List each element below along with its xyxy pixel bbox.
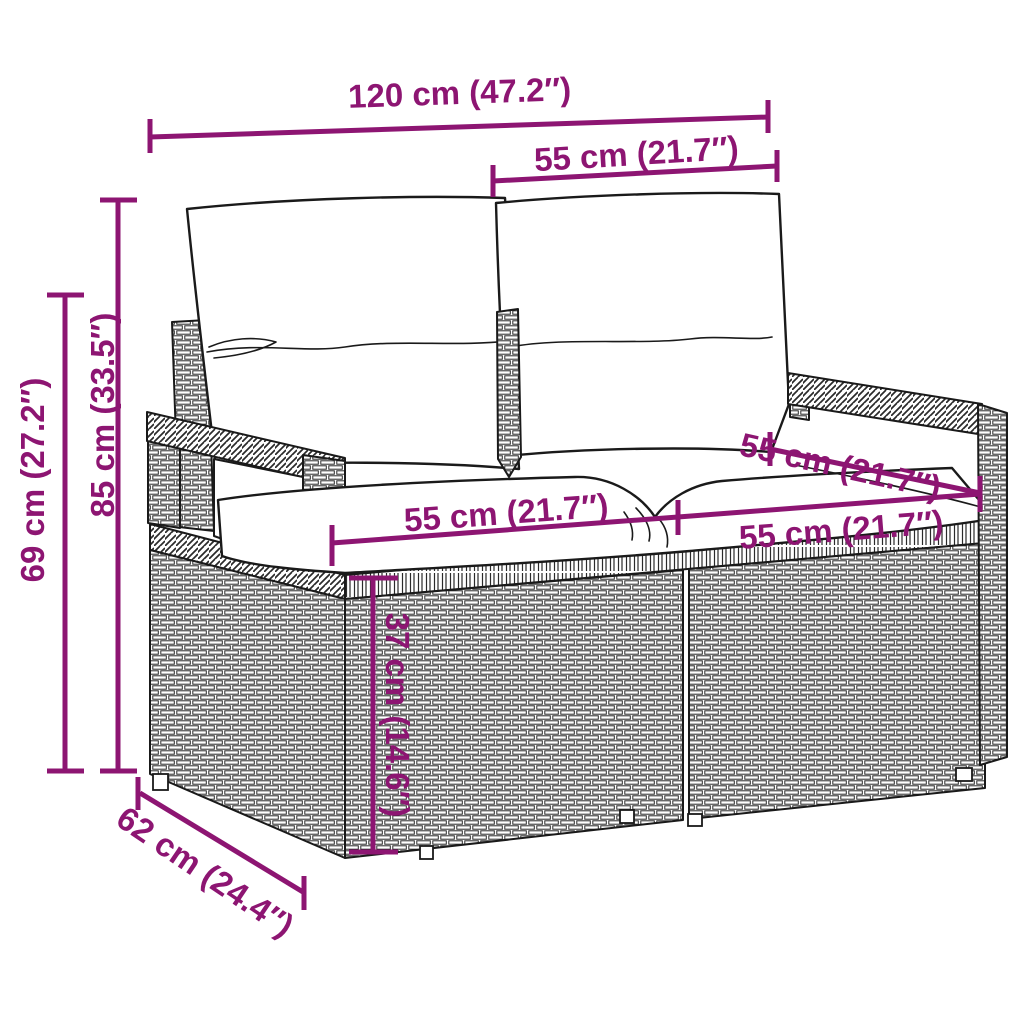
foot-front-left [420,846,433,859]
right-armrest-outer-panel [978,404,1007,765]
diagram-canvas: 120 cm (47.2″) 55 cm (21.7″) 85 cm (33.5… [0,0,1024,1024]
foot-seam [688,814,702,826]
base-front-face-right-module [689,543,985,819]
backrest-center-strip [497,309,521,477]
dim-overall-width-label: 120 cm (47.2″) [347,70,571,115]
back-cushion-right [496,193,789,456]
dim-armrest-height: 69 cm (27.2″) [14,295,84,771]
foot-front-middle [620,810,634,823]
dim-seat-height-label: 37 cm (14.6″) [379,613,416,818]
product-dimension-diagram: 120 cm (47.2″) 55 cm (21.7″) 85 cm (33.5… [0,0,1024,1024]
right-armrest-top-rail [788,373,982,434]
base-left-side-face [150,550,345,858]
foot-front-right [956,768,972,781]
dim-backrest-section-width: 55 cm (21.7″) [493,129,777,197]
dim-overall-height-label: 85 cm (33.5″) [84,313,121,518]
dim-overall-height: 85 cm (33.5″) [84,200,137,771]
foot-back-left [153,774,168,790]
dim-armrest-height-label: 69 cm (27.2″) [14,378,51,583]
back-cushion-left [187,197,519,469]
